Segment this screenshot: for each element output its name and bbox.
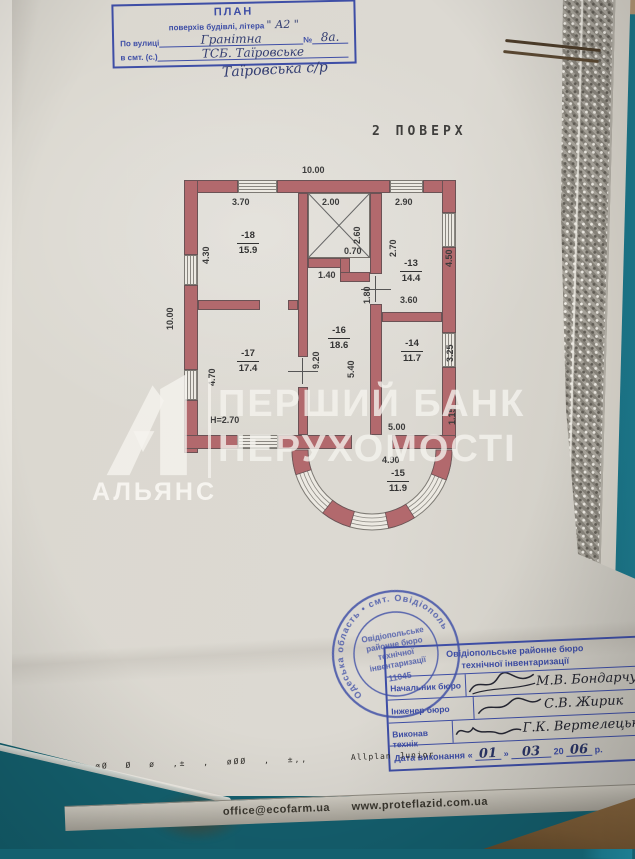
- dim-label: 3.25: [446, 344, 455, 362]
- ruler-site: www.proteflazid.com.ua: [351, 796, 488, 813]
- signature-area: [474, 694, 545, 719]
- dim-label: 9.20: [312, 351, 321, 369]
- watermark-alliance: АЛЬЯНС: [92, 478, 217, 507]
- room-label: -15 11.9: [370, 468, 426, 495]
- room-label: -18 15.9: [226, 230, 270, 257]
- dim-label: 4.30: [202, 246, 211, 264]
- window-symbol: [184, 255, 198, 285]
- room-number: -16: [328, 325, 350, 339]
- date-month-handwritten: 03: [511, 746, 551, 760]
- signature-squiggle: [452, 718, 523, 743]
- stair-landing-wall: [340, 272, 370, 282]
- partition-wall: [382, 312, 442, 322]
- room-number: -18: [237, 230, 259, 244]
- cad-footer-line: øØ Ø ø ,± , øØØ , ±,, Allplan Junior: [95, 750, 435, 771]
- partition-wall: [298, 193, 308, 357]
- floor-plan-sheet: ПЛАН поверхів будівлі, літера " А2 " По …: [12, 0, 635, 796]
- floor-title: 2 ПОВЕРХ: [372, 124, 467, 139]
- date-century: 20: [553, 746, 563, 756]
- row-label: Начальник бюро: [387, 675, 467, 700]
- cad-symbols: øØ Ø ø ,± , øØØ , ±,,: [95, 754, 308, 770]
- watermark-line1: ПЕРШИЙ БАНК: [218, 382, 525, 427]
- room-area: 11.9: [370, 482, 426, 495]
- opening-tick: [375, 276, 376, 302]
- room-label: -16 18.6: [317, 325, 361, 352]
- settlement-label: в смт. (с.): [120, 53, 157, 63]
- row-label: Виконав технік: [389, 721, 454, 746]
- quote-open: «: [467, 750, 472, 760]
- header-stamp: ПЛАН поверхів будівлі, літера " А2 " По …: [111, 0, 356, 69]
- date-day-handwritten: 01: [475, 748, 501, 761]
- dim-label: 3.70: [232, 198, 250, 207]
- letter-value-handwritten: " А2 ": [266, 18, 299, 32]
- opening-tick: [302, 358, 303, 384]
- number-value-handwritten: 8а.: [312, 32, 348, 45]
- dim-label: 5.40: [347, 360, 356, 378]
- signature-squiggle: [474, 694, 545, 719]
- wall-segment: [184, 285, 198, 370]
- alliance-logo-icon: [95, 372, 210, 477]
- room-area: 11.7: [390, 352, 434, 365]
- date-suffix: р.: [594, 745, 602, 755]
- partition-wall: [370, 193, 382, 274]
- partition-wall: [198, 300, 260, 310]
- room-number: -17: [237, 348, 259, 362]
- window-symbol: [390, 180, 423, 193]
- opening-tick: [288, 371, 318, 372]
- signature-area: [466, 672, 537, 697]
- ruler-print: office@ecofarm.ua www.proteflazid.com.ua: [223, 796, 489, 818]
- street-label: По вулиці: [120, 39, 159, 49]
- ruler-email: office@ecofarm.ua: [223, 802, 331, 818]
- window-symbol: [442, 213, 456, 247]
- sheet-content: ПЛАН поверхів будівлі, літера " А2 " По …: [0, 0, 635, 840]
- dim-label: 2.70: [389, 239, 398, 257]
- room-area: 15.9: [226, 244, 270, 257]
- window-symbol: [238, 180, 277, 193]
- partition-wall: [288, 300, 298, 310]
- dim-label: 0.70: [344, 247, 362, 256]
- signature-area: [452, 718, 523, 743]
- dim-label: 4.50: [445, 249, 454, 267]
- dim-label: 2.00: [322, 198, 340, 207]
- room-label: -17 17.4: [226, 348, 270, 375]
- signer-name: С.В. Жирик: [544, 690, 635, 716]
- quote-close: »: [503, 749, 508, 759]
- wall-segment: [277, 180, 390, 193]
- room-number: -14: [401, 338, 423, 352]
- dim-label: 10.00: [302, 166, 325, 175]
- watermark-line2: НЕРУХОМОСТІ: [218, 427, 525, 472]
- wall-segment: [184, 180, 198, 255]
- number-label: №: [303, 35, 312, 44]
- room-number: -13: [400, 258, 422, 272]
- room-area: 17.4: [226, 362, 270, 375]
- room-label: -13 14.4: [389, 258, 433, 285]
- watermark-bank: ПЕРШИЙ БАНК НЕРУХОМОСТІ: [218, 382, 525, 472]
- row-label: Інженер бюро: [388, 697, 475, 723]
- date-year-handwritten: 06: [566, 744, 592, 757]
- dim-label: 10.00: [166, 307, 175, 330]
- dim-label: 2.90: [395, 198, 413, 207]
- dim-label: 1.80: [363, 286, 372, 304]
- room-area: 18.6: [317, 339, 361, 352]
- room-label: -14 11.7: [390, 338, 434, 365]
- dim-label: 2.60: [353, 226, 362, 244]
- dim-label: 1.40: [318, 271, 336, 280]
- room-area: 14.4: [389, 272, 433, 285]
- signer-name: М.В. Бондарчук: [536, 667, 635, 694]
- signature-squiggle: [466, 672, 537, 697]
- dim-label: 3.60: [400, 296, 418, 305]
- wall-segment: [442, 180, 456, 213]
